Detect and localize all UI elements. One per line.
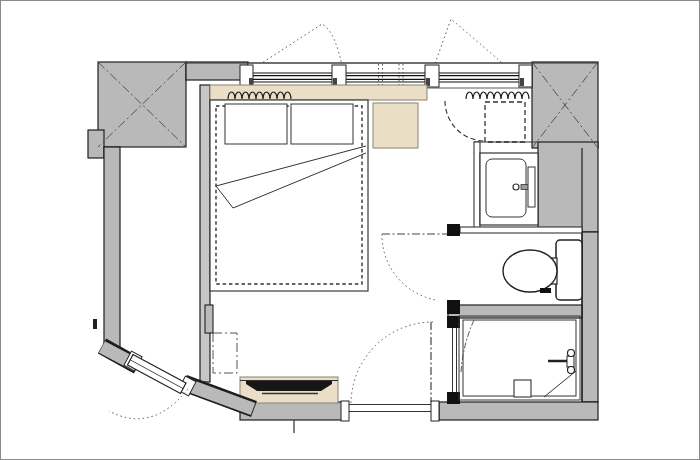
toilet-bowl bbox=[503, 250, 557, 292]
washbasin-niche bbox=[474, 142, 538, 230]
toilet-room-top-wall bbox=[460, 227, 582, 233]
corner-shelf-line bbox=[544, 371, 576, 397]
entry bbox=[102, 346, 254, 419]
shower-valve-icon bbox=[567, 356, 574, 367]
faucet-wall-plate bbox=[528, 167, 535, 207]
toilet-tank bbox=[556, 240, 582, 300]
wall-mounted-item-dashed bbox=[213, 333, 237, 373]
tv-screen bbox=[246, 381, 332, 391]
bottom-wall-right bbox=[439, 402, 598, 420]
floor-plan-drawing bbox=[0, 0, 700, 460]
wall-post bbox=[447, 224, 460, 236]
toilet-door-swing-arc-icon bbox=[382, 234, 436, 300]
toilet-detail-tick bbox=[540, 288, 551, 293]
wall-posts bbox=[447, 224, 460, 404]
niche-side-wall bbox=[474, 142, 480, 230]
shower-knob-icon bbox=[568, 350, 575, 357]
pillow-right bbox=[291, 104, 353, 144]
window-handle-icon bbox=[520, 78, 524, 86]
duct-wall bbox=[538, 142, 598, 232]
floor-drain bbox=[514, 380, 531, 397]
toilet bbox=[503, 240, 582, 300]
nightstand bbox=[373, 103, 418, 148]
left-wall-pilaster bbox=[88, 130, 104, 158]
wall-post bbox=[447, 300, 460, 314]
partition-jamb-detail bbox=[205, 305, 213, 333]
shower-fixtures bbox=[514, 350, 576, 398]
cabinet-swing-arc-icon bbox=[445, 101, 485, 141]
wall-cabinet-dashed bbox=[485, 102, 525, 142]
right-wall bbox=[582, 232, 598, 402]
bed bbox=[210, 100, 368, 291]
curtain-right-icon bbox=[466, 92, 529, 99]
floor-plan-canvas bbox=[0, 0, 700, 460]
left-wall bbox=[104, 147, 120, 354]
left-wall-joint-tick bbox=[93, 319, 97, 329]
bathroom-door-swing-arc-icon bbox=[351, 322, 433, 404]
bottom-wall-left bbox=[240, 402, 347, 420]
wall-post bbox=[447, 316, 460, 328]
entry-door-swing-arc-icon bbox=[109, 389, 188, 419]
room-partition bbox=[200, 85, 210, 382]
wall-post bbox=[447, 392, 460, 404]
threshold bbox=[341, 401, 439, 421]
basin bbox=[486, 159, 526, 217]
faucet-knob-icon bbox=[513, 184, 519, 190]
door-jamb-block bbox=[431, 401, 439, 421]
top-wall-segment bbox=[186, 62, 248, 80]
entry-door-leaf-line bbox=[131, 360, 184, 389]
pillow-left bbox=[225, 104, 287, 144]
door-jamb-block bbox=[341, 401, 349, 421]
